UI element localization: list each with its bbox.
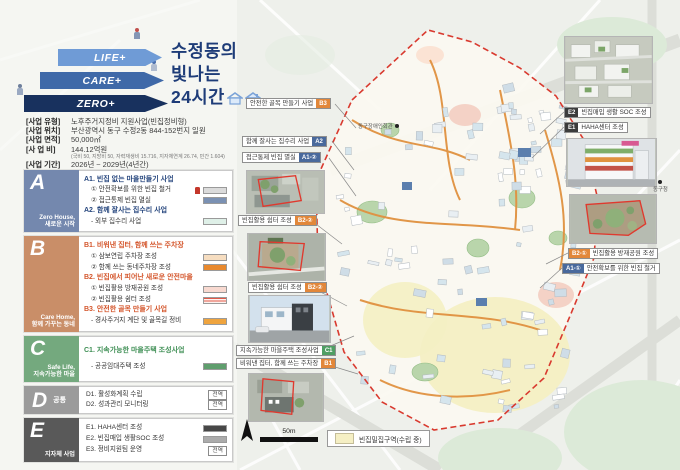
program-item: E1. HAHA센터 조성: [84, 424, 227, 433]
section-subtitle-ko: 공통: [53, 395, 66, 405]
legend-swatch: [203, 286, 227, 293]
legend-swatch: [203, 297, 227, 304]
map-label-text: 빈집활용 쉼터 조성: [249, 283, 305, 292]
map-label-text: 접근통제 빈집 멸실: [243, 153, 299, 162]
map-label-badge: B3: [316, 99, 330, 108]
program-item: - 공공임대주택 조성: [84, 363, 227, 372]
info-value: 50,000㎡: [71, 135, 101, 144]
info-label: [사업 기간]: [26, 160, 68, 169]
section-subtitle-en: Zero House,: [39, 214, 75, 221]
map-label-e2: E2 빈집매입 생활 SOC 조성: [564, 107, 651, 118]
item-label: - 공공임대주택 조성: [91, 363, 200, 372]
map-label-a1-2: 접근통제 빈집 멸실 A1-②: [242, 152, 321, 163]
map-label-text: 지속가능한 마을주택 조성사업: [237, 346, 322, 355]
photo-aerial-parking-site: [248, 373, 324, 422]
map-label-badge: A1-②: [299, 153, 320, 162]
section-letter: B: [30, 238, 79, 259]
section-subtitle-ko: 함께 가꾸는 동네: [32, 321, 75, 328]
item-label: D1. 활성화계획 수립: [86, 391, 205, 400]
item-label: E2. 빈집매입 생활SOC 조성: [86, 435, 200, 444]
map-label-badge: C1: [322, 346, 336, 355]
slogan-arrow-zero: ZERO+: [24, 95, 168, 112]
scale-bar-line: [260, 437, 318, 442]
legend-yellow-swatch: [335, 433, 354, 444]
map-label-badge: B1: [321, 359, 335, 368]
poi-label: 동구장애인회관: [358, 122, 393, 130]
map-label-badge: E2: [565, 108, 578, 117]
program-item: ① 삼보연립 주차장 조성: [84, 253, 227, 262]
section-b-care-home: B Care Home, 함께 가꾸는 동네 B1. 비워낸 집터, 함께 쓰는…: [24, 236, 233, 332]
map-label-b2-2b: 빈집활용 쉼터 조성 B2-②: [248, 282, 327, 293]
poi-dot: [658, 180, 662, 184]
legend-swatch: [203, 436, 227, 443]
poi-donggu-office: 동구청: [653, 180, 668, 193]
section-letter: E: [30, 420, 79, 441]
map-label-b2-1: B2-① 빈집활용 방재공원 조성: [568, 248, 658, 259]
program-item: - 경사주거지 계단 및 골목길 정비: [84, 317, 227, 326]
item-label: D2. 성과관리 모니터링: [86, 401, 205, 410]
item-label: ① 안전확보를 위한 빈집 철거: [91, 186, 192, 195]
program-item: ② 함께 쓰는 동네주차장 조성: [84, 264, 227, 273]
map-label-badge: A1-①: [563, 264, 584, 273]
map-label-text: 함께 잘사는 집수리 사업: [243, 137, 312, 146]
zone-badge: 전역: [208, 390, 227, 400]
map-label-a2: 함께 잘사는 집수리 사업 A2: [242, 136, 327, 147]
fire-hydrant-icon: [195, 187, 200, 194]
title-line-1: 수정동의: [171, 40, 301, 63]
map-label-badge: B2-①: [569, 249, 590, 258]
scale-bar: 50m: [260, 428, 318, 442]
item-label: ① 삼보연립 주차장 조성: [91, 253, 200, 262]
item-label: E1. HAHA센터 조성: [86, 424, 200, 433]
section-e-municipal: E 지자체 사업 E1. HAHA센터 조성 E2. 빈집매입 생활SOC 조성…: [24, 418, 233, 462]
program-item: E3. 정비지원팀 운영 전역: [84, 446, 227, 456]
item-label: ② 함께 쓰는 동네주차장 조성: [91, 264, 200, 273]
legend-swatch: [203, 254, 227, 261]
slogan-arrow-life: LIFE+: [58, 49, 162, 66]
legend-swatch: [203, 187, 227, 194]
zone-badge: 전역: [208, 400, 227, 410]
item-label: ② 빈집활용 쉼터 조성: [91, 296, 200, 305]
person-illustration: [16, 84, 24, 95]
photo-aerial-shelter-site: [247, 233, 326, 281]
poi-disabled-welfare-center: 동구장애인회관: [358, 122, 399, 130]
map-label-b3: 안전한 골목 만들기 사업 B3: [246, 98, 331, 109]
section-subtitle-ko: 지자체 사업: [45, 451, 75, 458]
program-item: ② 접근통제 빈집 멸실: [84, 197, 227, 206]
person-illustration: [133, 28, 141, 39]
section-letter: C: [30, 338, 79, 359]
map-label-text: 빈집매입 생활 SOC 조성: [578, 108, 649, 117]
item-label: E3. 정비지원팀 운영: [86, 446, 205, 455]
info-label: [사업 위치]: [26, 126, 68, 135]
program-item: E2. 빈집매입 생활SOC 조성: [84, 435, 227, 444]
info-value: 144.12억원: [71, 145, 107, 154]
section-d-common: D 공통 D1. 활성화계획 수립 전역 D2. 성과관리 모니터링 전역: [24, 386, 233, 414]
map-label-badge: E1: [565, 123, 578, 132]
map-label-text: 안전확보를 위한 빈집 철거: [584, 264, 659, 273]
legend-swatch: [203, 363, 227, 370]
map-label-text: 안전한 골목 만들기 사업: [247, 99, 316, 108]
photo-aerial-demolition-site: [246, 170, 325, 214]
legend-swatch: [203, 218, 227, 225]
legend-label: 빈집밀집구역(수립 중): [359, 434, 422, 444]
legend-swatch: [203, 264, 227, 271]
map-label-text: 빈집활용 방재공원 조성: [590, 249, 657, 258]
map-label-text: 비워낸 집터, 함께 쓰는 주차장: [237, 359, 321, 368]
project-poster: LIFE+ CARE+ ZERO+ 수정동의 빛나는 24시간 [사업 유형]노…: [0, 0, 680, 470]
legend-swatch: [203, 318, 227, 325]
section-c-safe-life: C Safe Life, 지속가능한 마을 C1. 지속가능한 마을주택 조성사…: [24, 336, 233, 382]
section-letter: D: [32, 390, 47, 411]
section-letter: A: [30, 172, 79, 193]
info-label: [사업 면적]: [26, 135, 68, 144]
title-line-2: 빛나는: [171, 63, 301, 86]
item-label: - 외부 집수리 사업: [91, 218, 200, 227]
info-label: [사 업 비]: [26, 145, 68, 154]
map-label-badge: B2-②: [305, 283, 326, 292]
project-info: [사업 유형]노후주거지정비 지원사업(빈집정비형) [사업 위치]부산광역시 …: [26, 117, 234, 169]
map-label-badge: A2: [312, 137, 326, 146]
section-a-zero-house: A Zero House, 새로운 시작 A1. 빈집 없는 마을만들기 사업 …: [24, 170, 233, 232]
poi-dot: [395, 124, 399, 128]
group-title: B2. 빈집에서 피어난 새로운 안전마을: [84, 274, 227, 283]
group-title: A1. 빈집 없는 마을만들기 사업: [84, 176, 227, 185]
map-label-text: 빈집활용 쉼터 조성: [239, 216, 295, 225]
group-title: C1. 지속가능한 마을주택 조성사업: [84, 347, 227, 356]
item-label: ① 빈집활용 방재공원 조성: [91, 285, 200, 294]
map-label-a1-1: A1-① 안전확보를 위한 빈집 철거: [562, 263, 660, 274]
item-label: - 경사주거지 계단 및 골목길 정비: [91, 317, 200, 326]
group-title: A2. 함께 잘사는 집수리 사업: [84, 207, 227, 216]
photo-aerial-soc-site: [564, 36, 653, 104]
item-label: ② 접근통제 빈집 멸실: [91, 197, 200, 206]
program-item: ② 빈집활용 쉼터 조성: [84, 296, 227, 305]
program-item: - 외부 집수리 사업: [84, 218, 227, 227]
zone-badge: 전역: [208, 446, 227, 456]
group-title: B1. 비워낸 집터, 함께 쓰는 주차장: [84, 242, 227, 251]
map-label-badge: B2-②: [295, 216, 316, 225]
slogan-arrow-care: CARE+: [40, 72, 164, 89]
north-arrow: [240, 419, 254, 443]
poi-label: 동구청: [653, 185, 668, 193]
scale-label: 50m: [260, 428, 318, 435]
map-label-e1: E1 HAHA센터 조성: [564, 122, 628, 133]
program-item: D2. 성과관리 모니터링 전역: [84, 400, 227, 410]
program-item: D1. 활성화계획 수립 전역: [84, 390, 227, 400]
photo-haha-center-render: [566, 138, 657, 187]
program-item: ① 안전확보를 위한 빈집 철거: [84, 186, 227, 195]
title-line-3: 24시간: [171, 86, 225, 109]
legend-swatch: [203, 425, 227, 432]
photo-village-housing-render: [248, 295, 331, 343]
info-label: [사업 유형]: [26, 117, 68, 126]
info-value: 노후주거지정비 지원사업(빈집정비형): [71, 117, 187, 126]
section-subtitle-ko: 지속가능한 마을: [33, 371, 75, 378]
map-label-b1: 비워낸 집터, 함께 쓰는 주차장 B1: [236, 358, 336, 369]
info-value: 부산광역시 동구 수정2동 844-152번지 일원: [71, 126, 206, 135]
info-value: 2026년 ~ 2029년(4년간): [71, 160, 149, 169]
map-label-b2-2a: 빈집활용 쉼터 조성 B2-②: [238, 215, 317, 226]
map-label-c1: 지속가능한 마을주택 조성사업 C1: [236, 345, 336, 356]
house-icon: [227, 92, 243, 105]
map-legend: 빈집밀집구역(수립 중): [327, 430, 430, 447]
program-item: ① 빈집활용 방재공원 조성: [84, 285, 227, 294]
section-subtitle-ko: 새로운 시작: [45, 221, 75, 228]
section-subtitle-en: Care Home,: [41, 314, 75, 321]
group-title: B3. 안전한 골목 만들기 사업: [84, 306, 227, 315]
map-label-text: HAHA센터 조성: [578, 123, 626, 132]
section-subtitle-en: Safe Life,: [47, 364, 75, 371]
legend-swatch: [203, 197, 227, 204]
photo-aerial-disaster-park: [569, 194, 657, 244]
